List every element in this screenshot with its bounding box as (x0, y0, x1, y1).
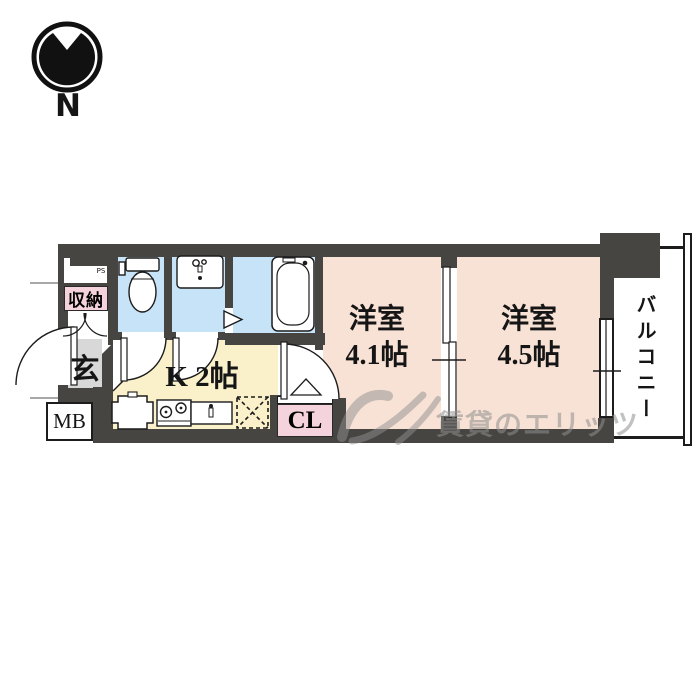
pipe-space-label: PS (94, 267, 108, 275)
storage-label: 収納 (68, 286, 104, 311)
closet-box: CL (277, 404, 333, 437)
wall-entrance-right (102, 354, 113, 391)
meter-box: MB (46, 402, 93, 441)
watermark-text: 賃貸のエリッツ (436, 403, 639, 443)
balcony-rail-right (683, 233, 692, 446)
balcony-rail-top (660, 246, 684, 249)
entrance-label: 玄 (69, 346, 101, 388)
wall-toilet-washroom (164, 257, 172, 332)
porch-line-bottom (30, 397, 58, 399)
kitchen-label: K 2帖 (146, 353, 258, 395)
pipe-space-notch-step (64, 258, 70, 267)
washroom-floor (172, 257, 225, 332)
wall-partition-top (441, 244, 457, 268)
closet-label: CL (288, 407, 323, 435)
toilet-room-floor (118, 257, 164, 332)
western-room-41-label: 洋室 4.1帖 (317, 302, 437, 374)
compass-rose-icon (24, 14, 112, 98)
wall-top (58, 244, 614, 257)
storage-closet-floor (68, 311, 108, 339)
western-room-45-size: 4.5帖 (469, 338, 589, 374)
closet-shelf (277, 396, 333, 404)
wall-bathroom-bottom (225, 333, 325, 345)
porch-line-top (30, 282, 58, 284)
meter-box-label: MB (53, 409, 86, 434)
western-room-45-label: 洋室 4.5帖 (469, 302, 589, 374)
western-room-45-name: 洋室 (469, 302, 589, 338)
wall-under-toilet-2 (164, 332, 176, 340)
western-room-41-size: 4.1帖 (317, 338, 437, 374)
compass (24, 14, 112, 98)
wall-closet-right (332, 398, 346, 429)
floor-plan-canvas: N MB CL 収納 (0, 0, 700, 700)
western-room-41-name: 洋室 (317, 302, 437, 338)
wall-left-lower (58, 383, 68, 402)
wall-balcony-block (600, 233, 660, 278)
storage-box: 収納 (64, 286, 108, 311)
wall-washroom-bathroom (225, 257, 233, 308)
bath-door-gap (225, 308, 233, 333)
bathroom-floor (233, 257, 315, 333)
wall-under-toilet-1 (108, 332, 122, 340)
compass-north-label: N (24, 88, 112, 124)
